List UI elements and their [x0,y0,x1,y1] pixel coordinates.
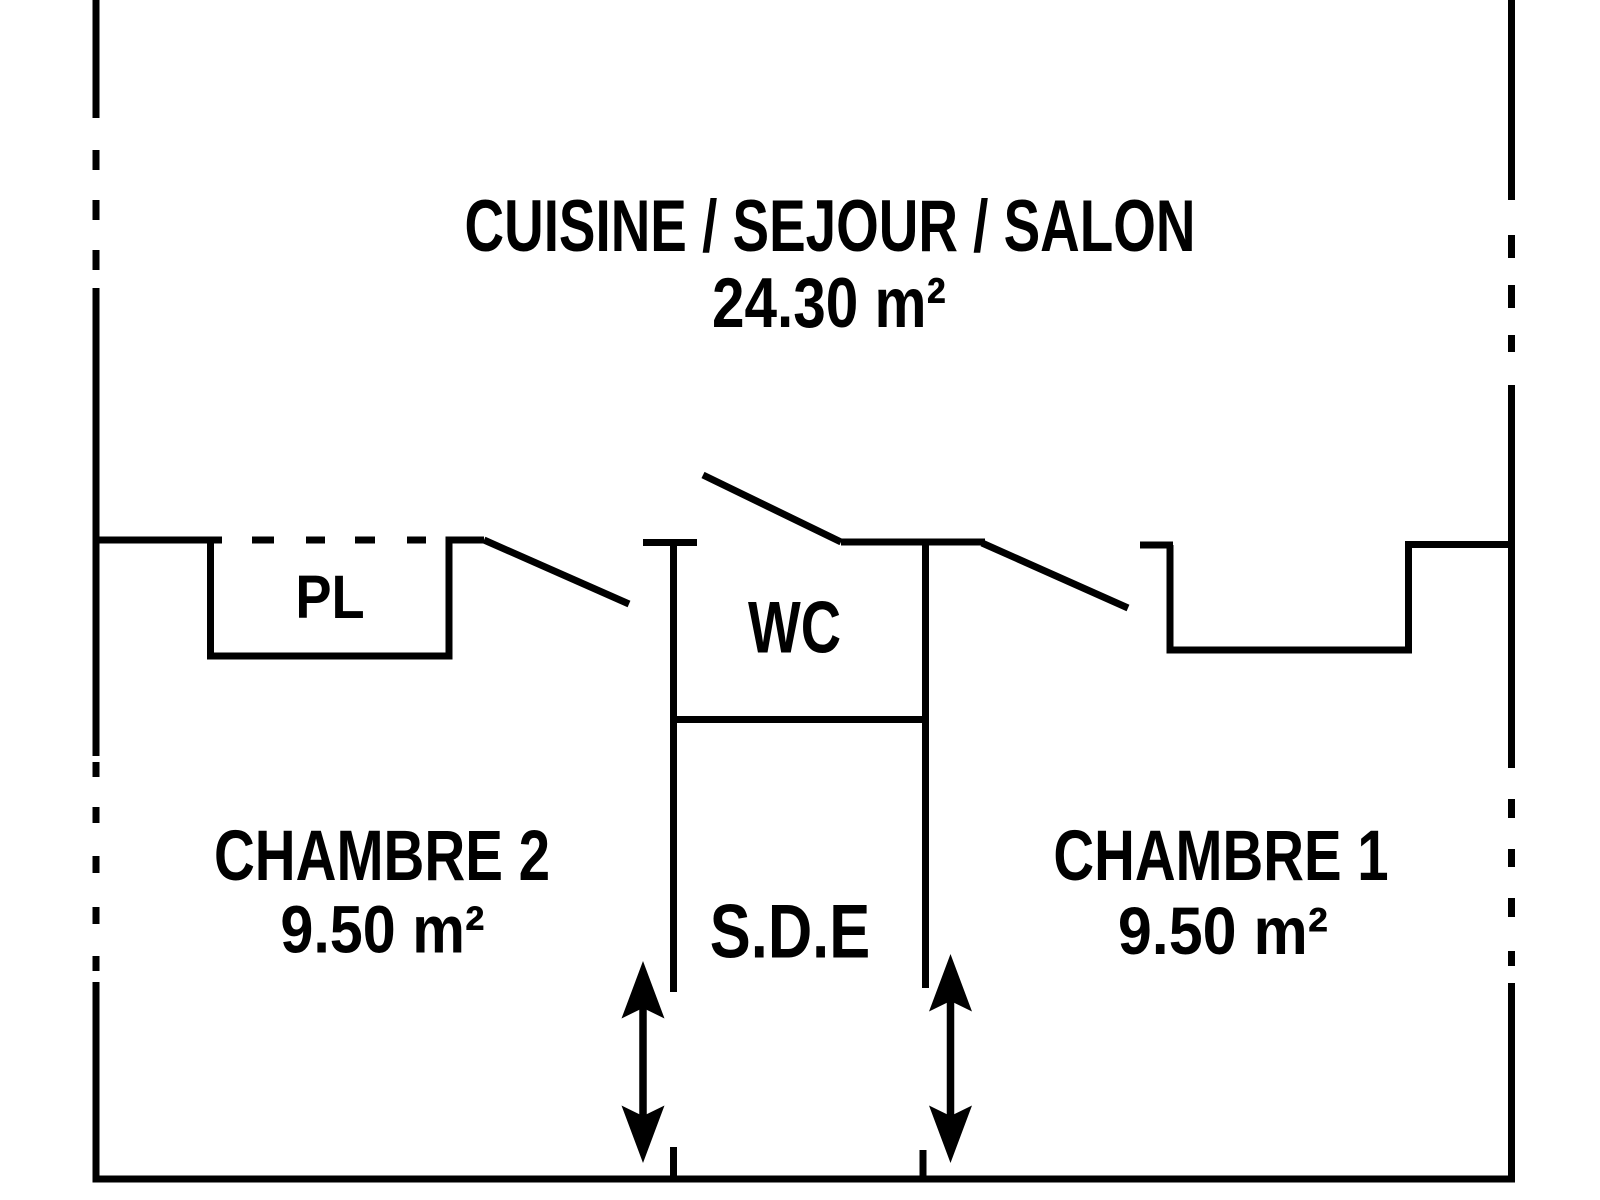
svg-text:PL: PL [295,564,364,632]
svg-text:S.D.E: S.D.E [710,888,870,974]
svg-text:9.50 m²: 9.50 m² [1118,893,1328,968]
svg-text:9.50 m²: 9.50 m² [280,893,484,967]
svg-text:24.30 m²: 24.30 m² [712,263,946,343]
svg-text:CHAMBRE 1: CHAMBRE 1 [1053,816,1388,896]
svg-text:CUISINE / SEJOUR / SALON: CUISINE / SEJOUR / SALON [465,185,1196,266]
svg-text:WC: WC [748,586,841,668]
svg-text:CHAMBRE 2: CHAMBRE 2 [214,816,550,896]
